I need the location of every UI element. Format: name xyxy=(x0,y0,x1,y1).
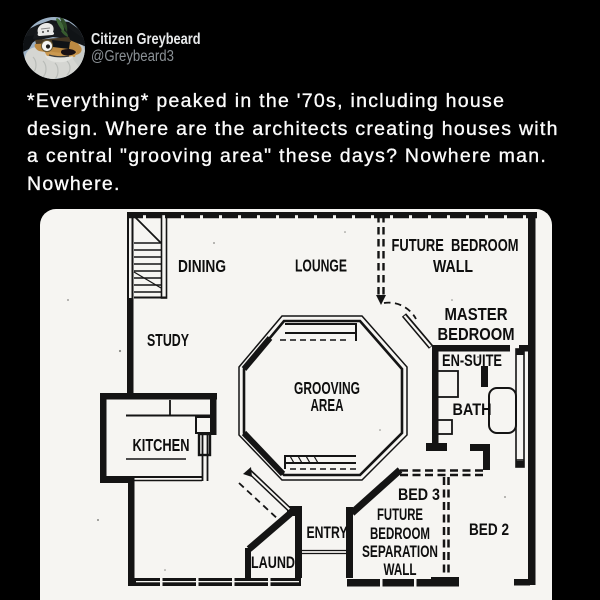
svg-text:DINING: DINING xyxy=(178,256,226,276)
svg-text:MASTER: MASTER xyxy=(445,304,508,324)
svg-text:BEDROOM: BEDROOM xyxy=(438,324,515,344)
svg-text:BATH: BATH xyxy=(453,401,492,419)
svg-text:FUTURE BEDROOM: FUTURE BEDROOM xyxy=(392,235,519,255)
svg-text:LAUND: LAUND xyxy=(251,554,295,572)
svg-text:BEDROOM: BEDROOM xyxy=(370,525,430,543)
svg-text:BED 3: BED 3 xyxy=(398,486,440,504)
svg-text:LOUNGE: LOUNGE xyxy=(295,256,347,276)
svg-text:WALL: WALL xyxy=(384,561,417,579)
svg-text:ENTRY: ENTRY xyxy=(307,524,348,542)
svg-text:BED 2: BED 2 xyxy=(469,521,509,539)
svg-text:FUTURE: FUTURE xyxy=(377,506,423,524)
svg-text:SEPARATION: SEPARATION xyxy=(362,543,438,561)
svg-text:AREA: AREA xyxy=(311,395,344,415)
svg-text:STUDY: STUDY xyxy=(147,330,189,350)
svg-text:EN-SUITE: EN-SUITE xyxy=(442,352,502,370)
svg-text:WALL: WALL xyxy=(433,256,473,276)
svg-text:KITCHEN: KITCHEN xyxy=(133,435,190,455)
